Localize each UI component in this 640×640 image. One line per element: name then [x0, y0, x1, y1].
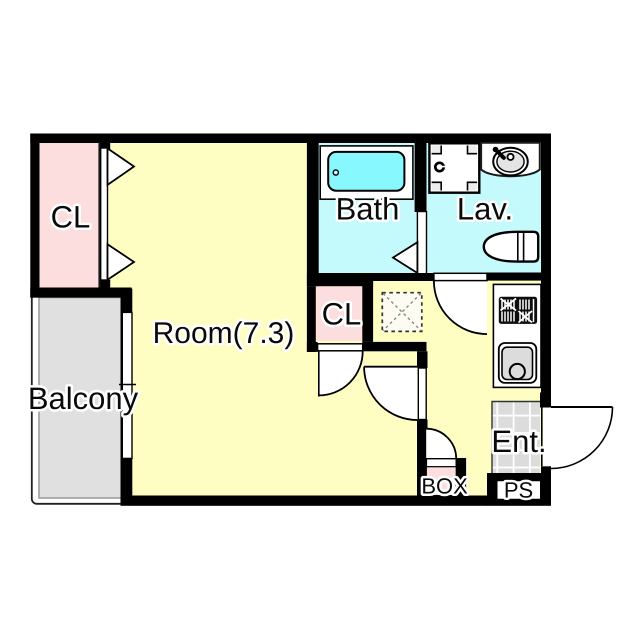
svg-text:Ent.: Ent. [491, 424, 546, 459]
svg-text:Bath: Bath [336, 192, 400, 227]
svg-text:BOX: BOX [421, 474, 468, 499]
svg-text:PS: PS [504, 477, 533, 502]
svg-text:Room(7.3): Room(7.3) [153, 317, 295, 350]
svg-text:Lav.: Lav. [457, 192, 513, 227]
svg-text:CL: CL [322, 297, 362, 332]
svg-text:CL: CL [51, 200, 91, 235]
svg-text:Balcony: Balcony [28, 381, 139, 416]
